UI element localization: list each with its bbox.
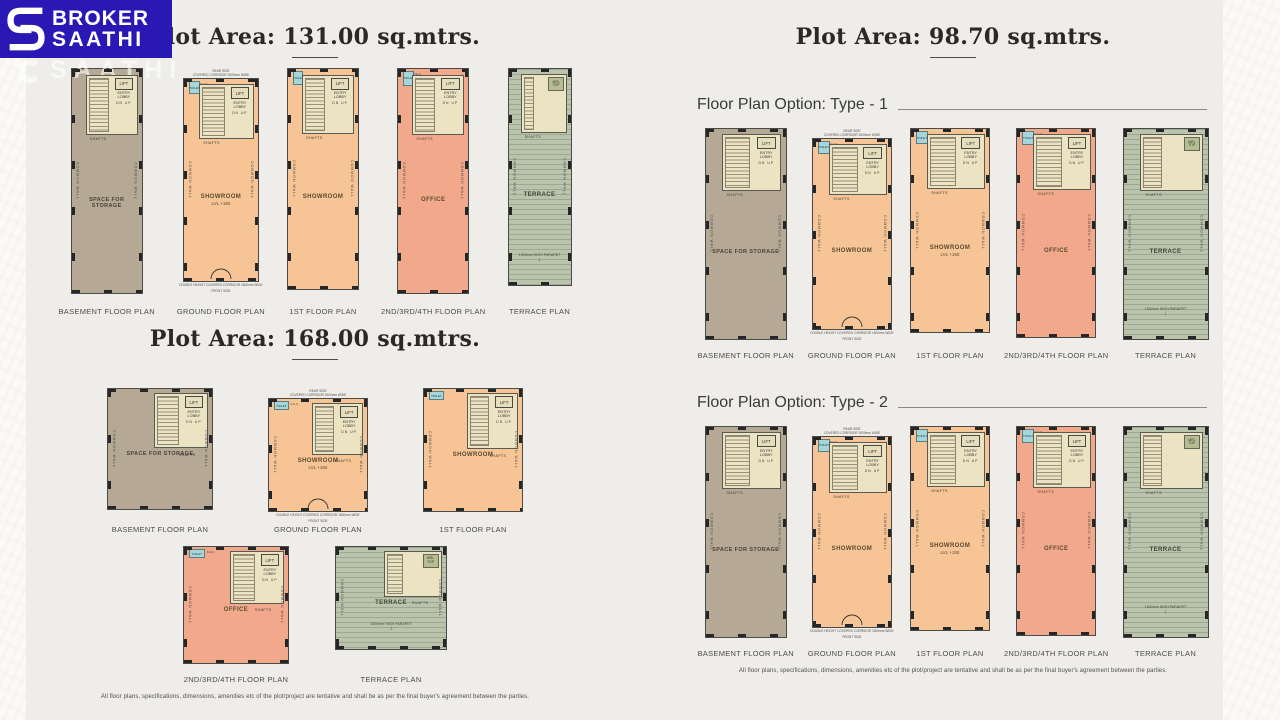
floor-plan-card: REAR SIDE COVERED CORRIDOR 2000mm WIDE C… [423,388,523,534]
lift-label: LIFT [1073,141,1082,146]
floor-plan-label: GROUND FLOOR PLAN [274,525,362,534]
entry-lobby-label: ENTRY LOBBY [1065,449,1089,458]
stair-lift-block: LIFT ENTRY LOBBY DN UP MRL TOP [829,442,887,493]
room-name: SPACE FOR STORAGE [112,451,208,457]
floor-plan-drawing: COMMON WALL COMMON WALL TOILET F.H.C LIF… [397,68,469,294]
wall-posts-bottom [288,286,358,289]
wall-posts-bottom [184,660,288,663]
wall-posts-top [108,389,212,392]
staircase [725,137,751,188]
main-room: OFFICE [188,607,284,613]
dn-label: DN [1069,161,1076,165]
toilet-label: TOILET [819,145,829,149]
common-wall-label: COMMON WALL [563,158,567,196]
up-down-labels: DN UP [262,578,278,582]
left-column: Plot Area: 131.00 sq.mtrs. REAR SIDE COV… [25,0,605,700]
wall-posts-bottom [911,329,989,332]
dn-label: DN [1069,459,1076,463]
lift-label: LIFT [966,439,975,444]
logo-text: BROKER SAATHI [52,8,149,51]
lift-box: LIFT [961,137,980,149]
wall-posts-top [184,79,258,82]
staircase [470,396,489,446]
toilet-label: TOILET [431,394,441,398]
plan-row-type-2: REAR SIDE COVERED CORRIDOR 2000mm WIDE C… [693,426,1213,658]
common-wall-label: COMMON WALL [1087,214,1091,252]
stair-lift-block: LIFT ENTRY LOBBY DN UP MRL TOP [86,75,138,135]
floor-plan-label: 2ND/3RD/4TH FLOOR PLAN [1004,649,1109,658]
dn-label: DN [496,420,503,424]
common-wall-label: COMMON WALL [250,161,254,199]
covered-corridor-label: COVERED CORRIDOR 2000mm WIDE [193,73,250,77]
common-wall-label: COMMON WALL [280,586,284,624]
wall-posts-top [424,389,522,392]
toilet-label: TOILET [1023,136,1033,140]
floor-plan-label: GROUND FLOOR PLAN [808,351,896,360]
wall-posts-top [1124,427,1208,430]
up-label: UP [125,101,132,105]
up-down-labels: DN UP [116,101,132,105]
entry-lobby-label: ENTRY LOBBY [492,410,516,419]
entry-lobby-label: ENTRY LOBBY [754,449,778,458]
floor-plan-label: 1ST FLOOR PLAN [289,307,356,316]
up-label: UP [1078,161,1085,165]
staircase [1143,435,1162,486]
up-label: UP [1078,459,1085,463]
floor-plan-drawing: COMMON WALL COMMON WALL TOILET F.H.C LIF… [71,68,143,294]
disclaimer-text: All floor plans, specifications, dimensi… [693,668,1213,674]
up-down-labels: DN UP [186,420,202,424]
lift-label: LIFT [868,449,877,454]
entry-lobby-label: ENTRY LOBBY [258,568,282,577]
room-name: SHOWROOM [273,458,363,464]
common-wall-label: COMMON WALL [340,579,344,617]
dn-label: DN [232,111,239,115]
stair-lift-block: LIFT ENTRY LOBBY DN UP MRL TOP [927,134,985,189]
title-underline [930,57,976,58]
common-wall-label: COMMON WALL [514,431,518,469]
floor-plan-drawing: COMMON WALL COMMON WALL TOILET F.H.C LIF… [910,128,990,333]
rear-side-note: REAR SIDE COVERED CORRIDOR 2000mm WIDE [824,129,881,137]
plot-area-title-168: Plot Area: 168.00 sq.mtrs. [25,326,605,352]
dn-label: DN [332,101,339,105]
room-name: TERRACE [340,600,442,606]
wall-posts-top [911,129,989,132]
floor-plan-drawing: COMMON WALL COMMON WALL TOILET F.H.C LIF… [1123,426,1209,638]
up-label: UP [767,161,774,165]
option-heading-label: Floor Plan Option: Type - 2 [697,394,888,412]
up-down-labels: DN UP [496,420,512,424]
floor-plan-label: 1ST FLOOR PLAN [439,525,506,534]
room-level-note: LVL +150 [915,550,985,555]
logo-line-broker: BROKER [52,8,149,29]
floor-plan-drawing: COMMON WALL COMMON WALL TOILET F.H.C LIF… [812,436,892,628]
front-side-note: FRONT SIDE [842,635,861,639]
common-wall-label: COMMON WALL [1021,512,1025,550]
lift-box: LIFT [331,78,350,90]
floor-plan-card: REAR SIDE COVERED CORRIDOR 2000mm WIDE C… [698,426,794,658]
staircase [387,554,403,595]
up-label: UP [767,459,774,463]
fire-hose-cabinet-label: F.H.C [207,550,215,554]
wall-posts-top [1017,427,1095,430]
toilet-area: TOILET [429,391,444,400]
floor-plan-label: 2ND/3RD/4TH FLOOR PLAN [381,307,486,316]
wall-posts-bottom [1017,334,1095,337]
staircase [1143,137,1162,188]
floor-plan-drawing: COMMON WALL COMMON WALL TOILET F.H.C LIF… [287,68,359,290]
room-name: SHOWROOM [292,194,354,200]
shafts-label: SHAFTS [306,136,323,140]
up-label: UP [451,101,458,105]
floor-plan-drawing: COMMON WALL COMMON WALL TOILET F.H.C LIF… [1016,128,1096,338]
common-wall-label: COMMON WALL [76,162,80,200]
shafts-label: SHAFTS [833,197,850,201]
wall-posts-bottom [184,278,258,281]
lift-box: LIFT [261,554,280,566]
staircase [202,87,225,136]
floor-plan-card: REAR SIDE COVERED CORRIDOR 2000mm WIDE C… [808,128,896,360]
parapet-note: 1500mm HIGH PARAPET ↓ [1124,605,1208,616]
lift-lobby-column: LIFT ENTRY LOBBY DN UP [327,76,353,133]
common-wall-label: COMMON WALL [438,579,442,617]
disclaimer-text: All floor plans, specifications, dimensi… [25,694,605,700]
double-height-corridor-note: DOUBLE HEIGHT COVERED CORRIDOR 1500mm WI… [179,283,262,287]
main-room: SHOWROOM LVL +150 [915,543,985,555]
wall-posts-top [398,69,468,72]
floor-plan-label: BASEMENT FLOOR PLAN [112,525,208,534]
main-room: SHOWROOM [817,248,887,254]
shafts-label: SHAFTS [1145,193,1162,197]
staircase [930,435,956,484]
lift-lobby-column: LIFT ENTRY LOBBY DN UP [181,394,207,447]
logo-line-saathi: SAATHI [52,29,149,50]
covered-corridor-label: COVERED CORRIDOR 2000mm WIDE [290,393,347,397]
room-name: OFFICE [1021,546,1091,552]
plan-row-type-1: REAR SIDE COVERED CORRIDOR 2000mm WIDE C… [693,128,1213,360]
floor-plan-drawing: COMMON WALL COMMON WALL TOILET F.H.C LIF… [1123,128,1209,340]
wall-posts-bottom [813,624,891,627]
stair-lift-block: LIFT ENTRY LOBBY DN UP MRL TOP [521,74,567,132]
floor-plan-drawing: COMMON WALL COMMON WALL TOILET F.H.C LIF… [268,398,368,512]
mrl-top-box: MRL TOP [1184,137,1200,151]
wall-posts-top [184,547,288,550]
up-down-labels: DN UP [1069,459,1085,463]
lift-box: LIFT [495,396,514,408]
room-name: SHOWROOM [188,194,254,200]
room-name: TERRACE [513,192,567,198]
right-column: Plot Area: 98.70 sq.mtrs. Floor Plan Opt… [693,0,1213,674]
s-monogram-icon [6,5,46,53]
shafts-label: SHAFTS [1037,192,1054,196]
lift-lobby-column: LIFT ENTRY LOBBY DN UP [958,135,984,188]
double-height-corridor-note: DOUBLE HEIGHT COVERED CORRIDOR 1500mm WI… [810,629,893,633]
common-wall-label: COMMON WALL [981,212,985,250]
lift-label: LIFT [966,141,975,146]
front-side-note: FRONT SIDE [211,289,230,293]
common-wall-label: COMMON WALL [513,158,517,196]
floor-plan-card: REAR SIDE COVERED CORRIDOR 2000mm WIDE C… [1004,128,1109,360]
up-down-labels: DN UP [865,469,881,473]
shafts-label: SHAFTS [416,137,433,141]
floor-plan-drawing: COMMON WALL COMMON WALL TOILET F.H.C LIF… [107,388,213,510]
floor-plan-label: TERRACE PLAN [360,675,421,684]
toilet-label: TOILET [192,552,202,556]
common-wall-label: COMMON WALL [188,586,192,624]
stair-lift-block: LIFT ENTRY LOBBY DN UP MRL TOP [467,393,518,449]
floor-plan-drawing: COMMON WALL COMMON WALL TOILET F.H.C LIF… [508,68,572,286]
dn-label: DN [341,430,348,434]
shafts-label: SHAFTS [727,491,744,495]
parapet-note: 1500mm HIGH PARAPET ↓ [1124,307,1208,318]
option-heading-label: Floor Plan Option: Type - 1 [697,96,888,114]
up-down-labels: DN UP [963,459,979,463]
plan-row-131: REAR SIDE COVERED CORRIDOR 2000mm WIDE C… [25,68,605,316]
watermark-ring-icon [18,59,42,83]
common-wall-label: COMMON WALL [188,161,192,199]
up-label: UP [505,420,512,424]
main-room: OFFICE [402,197,464,203]
rear-side-note: REAR SIDE COVERED CORRIDOR 2000mm WIDE [290,389,347,397]
lift-box: LIFT [185,396,204,408]
stair-lift-block: LIFT ENTRY LOBBY DN UP MRL TOP [927,432,985,487]
floor-plan-card: REAR SIDE COVERED CORRIDOR 2000mm WIDE C… [335,546,447,684]
wall-posts-bottom [706,634,786,637]
floor-plan-option-type-2-heading: Floor Plan Option: Type - 2 [697,394,1209,412]
stair-lift-block: LIFT ENTRY LOBBY DN UP MRL TOP [722,134,782,191]
floor-plan-card: REAR SIDE COVERED CORRIDOR 2000mm WIDE C… [698,128,794,360]
floor-plan-label: BASEMENT FLOOR PLAN [698,649,794,658]
room-name: SPACE FOR STORAGE [710,547,782,553]
entry-lobby-label: ENTRY LOBBY [959,151,983,160]
toilet-area: TOILET [189,549,205,558]
up-down-labels: DN UP [232,111,248,115]
wall-posts-bottom [108,506,212,509]
paper-texture-left [0,0,26,720]
dn-label: DN [116,101,123,105]
main-room: SPACE FOR STORAGE [710,547,782,553]
common-wall-label: COMMON WALL [817,513,821,551]
floor-plan-drawing: COMMON WALL COMMON WALL TOILET F.H.C LIF… [335,546,447,650]
shafts-label: SHAFTS [727,193,744,197]
dn-label: DN [865,469,872,473]
common-wall-label: COMMON WALL [883,215,887,253]
floor-plan-card: REAR SIDE COVERED CORRIDOR 2000mm WIDE C… [183,546,289,684]
up-label: UP [972,459,979,463]
wall-posts-top [509,69,571,72]
up-down-labels: DN UP [758,459,774,463]
up-label: UP [874,171,881,175]
lift-label: LIFT [190,400,199,405]
up-label: UP [271,578,278,582]
lift-box: LIFT [1068,435,1087,447]
down-arrow-icon: ↓ [336,626,446,633]
wall-posts-bottom [72,290,142,293]
stair-lift-block: LIFT ENTRY LOBBY DN UP MRL TOP [1140,432,1203,489]
lift-lobby-column: LIFT ENTRY LOBBY DN UP [752,433,780,488]
floor-plan-card: REAR SIDE COVERED CORRIDOR 2000mm WIDE C… [59,68,155,316]
staircase [832,147,858,192]
room-name: OFFICE [1021,248,1091,254]
floor-plan-label: TERRACE PLAN [509,307,570,316]
floor-plan-drawing: COMMON WALL COMMON WALL TOILET F.H.C LIF… [812,138,892,330]
up-down-labels: DN UP [443,101,459,105]
lift-label: LIFT [446,81,455,86]
main-room: SHOWROOM [817,546,887,552]
staircase [930,137,956,186]
dn-label: DN [758,161,765,165]
down-arrow-icon: ↓ [1124,609,1208,616]
floor-plan-card: REAR SIDE COVERED CORRIDOR 2000mm WIDE C… [910,128,990,360]
wall-posts-bottom [706,336,786,339]
main-room: SPACE FOR STORAGE [76,197,138,209]
paper-texture-right [1223,0,1280,720]
floor-plan-drawing: COMMON WALL COMMON WALL TOILET F.H.C LIF… [423,388,523,512]
rear-side-note: REAR SIDE COVERED CORRIDOR 2000mm WIDE [824,427,881,435]
room-name: SPACE FOR STORAGE [76,197,138,209]
main-room: SPACE FOR STORAGE [112,451,208,457]
floor-plan-card: REAR SIDE COVERED CORRIDOR 2000mm WIDE C… [177,68,265,316]
main-room: TERRACE [1128,547,1204,553]
floor-plan-card: REAR SIDE COVERED CORRIDOR 2000mm WIDE C… [910,426,990,658]
floor-plan-label: BASEMENT FLOOR PLAN [59,307,155,316]
staircase [832,445,858,490]
common-wall-label: COMMON WALL [273,436,277,474]
common-wall-label: COMMON WALL [915,510,919,548]
wall-posts-bottom [911,627,989,630]
rear-side-note: REAR SIDE COVERED CORRIDOR 2000mm WIDE [193,69,250,77]
up-down-labels: DN UP [1069,161,1085,165]
room-name: OFFICE [188,607,284,613]
floor-plan-card: REAR SIDE COVERED CORRIDOR 2000mm WIDE C… [287,68,359,316]
lift-box: LIFT [757,137,776,149]
main-room: SHOWROOM [428,452,518,458]
floor-plan-drawing: COMMON WALL COMMON WALL TOILET F.H.C LIF… [183,78,259,282]
lift-box: LIFT [340,406,359,418]
wall-posts-bottom [1124,336,1208,339]
toilet-label: TOILET [276,404,286,408]
front-side-note: FRONT SIDE [842,337,861,341]
staircase [157,396,179,445]
floor-plan-card: REAR SIDE COVERED CORRIDOR 2000mm WIDE C… [268,388,368,534]
dn-label: DN [443,101,450,105]
wall-posts-bottom [1017,632,1095,635]
staircase [1036,137,1062,187]
lift-lobby-column: LIFT ENTRY LOBBY DN UP [227,85,253,138]
floor-plan-label: 2ND/3RD/4TH FLOOR PLAN [184,675,289,684]
floor-plan-card: REAR SIDE COVERED CORRIDOR 2000mm WIDE C… [808,426,896,658]
staircase [233,554,255,601]
floor-plan-label: GROUND FLOOR PLAN [177,307,265,316]
stair-lift-block: LIFT ENTRY LOBBY DN UP MRL TOP [722,432,782,489]
shafts-label: SHAFTS [833,495,850,499]
common-wall-label: COMMON WALL [204,430,208,468]
toilet-label: TOILET [819,443,829,447]
main-room: TERRACE [340,600,442,606]
toilet-label: TOILET [917,434,927,438]
main-room: SHOWROOM LVL +150 [273,458,363,470]
up-down-labels: DN UP [332,101,348,105]
dn-label: DN [963,161,970,165]
floor-plan-drawing: COMMON WALL COMMON WALL TOILET F.H.C LIF… [183,546,289,664]
room-name: SPACE FOR STORAGE [710,249,782,255]
lift-box: LIFT [863,445,882,457]
front-side-note: FRONT SIDE [308,519,327,523]
floor-plan-label: BASEMENT FLOOR PLAN [698,351,794,360]
common-wall-label: COMMON WALL [710,513,714,551]
wall-posts-bottom [398,290,468,293]
entry-lobby-label: ENTRY LOBBY [1065,151,1089,160]
lift-box: LIFT [757,435,776,447]
dn-label: DN [963,459,970,463]
room-level-note: LVL +150 [273,465,363,470]
entry-lobby-label: ENTRY LOBBY [438,91,462,100]
lift-label: LIFT [500,400,509,405]
lift-label: LIFT [1073,439,1082,444]
mrl-top-box: MRL TOP [423,554,439,568]
main-room: TERRACE [513,192,567,198]
floor-plan-label: 2ND/3RD/4TH FLOOR PLAN [1004,351,1109,360]
main-room: SHOWROOM [292,194,354,200]
entry-lobby-label: ENTRY LOBBY [861,161,885,170]
staircase [305,78,325,131]
stair-lift-block: LIFT ENTRY LOBBY DN UP MRL TOP [384,551,441,598]
main-room: OFFICE [1021,248,1091,254]
wall-posts-bottom [1124,634,1208,637]
lift-lobby-column: LIFT ENTRY LOBBY DN UP [1164,433,1182,488]
entry-lobby-label: ENTRY LOBBY [754,151,778,160]
main-room: SHOWROOM LVL +150 [188,194,254,206]
room-name: TERRACE [1128,547,1204,553]
entry-lobby-label: ENTRY LOBBY [959,449,983,458]
covered-corridor-label: COVERED CORRIDOR 2000mm WIDE [824,431,881,435]
up-down-labels: DN UP [963,161,979,165]
common-wall-label: COMMON WALL [112,430,116,468]
stair-lift-block: LIFT ENTRY LOBBY DN UP MRL TOP [302,75,354,134]
dn-label: DN [758,459,765,463]
staircase [1036,435,1062,485]
mrl-top-label: MRL TOP [1185,439,1199,446]
room-name: TERRACE [1128,249,1204,255]
room-name: SHOWROOM [817,546,887,552]
mrl-top-label: MRL TOP [549,81,563,88]
double-height-corridor-note: DOUBLE HEIGHT COVERED CORRIDOR 1500mm WI… [276,513,359,517]
lift-lobby-column: LIFT ENTRY LOBBY DN UP [405,552,420,597]
up-label: UP [241,111,248,115]
staircase [524,77,534,129]
floor-plan-drawing: COMMON WALL COMMON WALL TOILET F.H.C LIF… [705,426,787,638]
stair-lift-block: LIFT ENTRY LOBBY DN UP MRL TOP [199,84,254,139]
main-room: SPACE FOR STORAGE [710,249,782,255]
common-wall-label: COMMON WALL [292,160,296,198]
room-name: OFFICE [402,197,464,203]
lift-lobby-column: LIFT ENTRY LOBBY DN UP [111,76,137,134]
room-name: SHOWROOM [915,245,985,251]
wall-posts-top [813,139,891,142]
entry-lobby-label: ENTRY LOBBY [861,459,885,468]
lift-box: LIFT [231,87,250,99]
room-level-note: LVL +150 [188,201,254,206]
wall-posts-bottom [509,282,571,285]
title-underline [292,359,338,360]
toilet-area: TOILET [274,401,289,410]
entry-lobby-label: ENTRY LOBBY [328,91,352,100]
dn-label: DN [186,420,193,424]
lift-lobby-column: LIFT ENTRY LOBBY DN UP [257,552,283,603]
floor-plan-card: REAR SIDE COVERED CORRIDOR 2000mm WIDE C… [107,388,213,534]
main-room: SHOWROOM LVL +150 [915,245,985,257]
wall-posts-top [288,69,358,72]
